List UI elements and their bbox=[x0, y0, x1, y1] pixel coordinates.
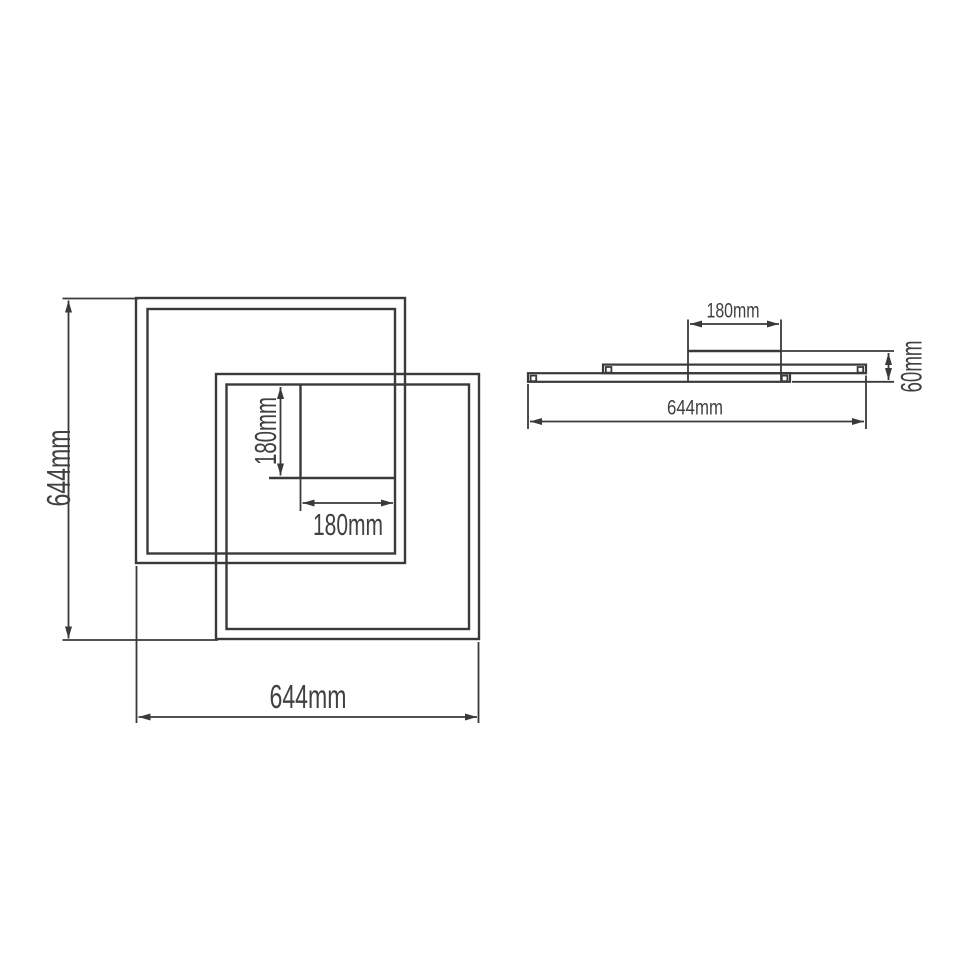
upper-bar-outline bbox=[603, 365, 866, 374]
upper-bar-left-endcap bbox=[606, 367, 612, 373]
lower-bar-outline bbox=[528, 373, 790, 382]
dim-front-canopy-width: 180mm bbox=[301, 479, 394, 542]
dimension-label-side-canopy-width: 180mm bbox=[707, 300, 760, 323]
lower-bar-right-endcap bbox=[782, 376, 788, 382]
side-view: 180mm 60mm 644mm bbox=[528, 300, 929, 430]
upper-frame-bar bbox=[603, 365, 866, 374]
dimension-label-overall-width: 644mm bbox=[270, 678, 347, 715]
dim-side-overall-width: 644mm bbox=[528, 376, 866, 430]
dim-front-canopy-height: 180mm bbox=[248, 387, 283, 476]
dim-front-overall-height: 644mm bbox=[40, 299, 218, 641]
dim-side-fixture-height: 60mm bbox=[781, 341, 929, 393]
dimension-label-fixture-height: 60mm bbox=[896, 341, 929, 393]
canopy-side-profile bbox=[688, 320, 781, 382]
dim-front-overall-width: 644mm bbox=[137, 566, 479, 723]
upper-bar-right-endcap bbox=[858, 367, 864, 373]
front-view: 644mm 644mm 180mm 180mm bbox=[40, 298, 479, 723]
dimension-label-overall-height: 644mm bbox=[40, 430, 77, 507]
lower-bar-left-endcap bbox=[531, 376, 537, 382]
dimension-drawing-page: 644mm 644mm 180mm 180mm bbox=[0, 0, 970, 971]
canopy-plate bbox=[269, 386, 395, 479]
dimension-label-side-overall-width: 644mm bbox=[667, 397, 723, 420]
lower-frame-bar bbox=[528, 373, 790, 382]
dimension-label-canopy-height: 180mm bbox=[248, 397, 283, 465]
dim-side-canopy-width: 180mm bbox=[690, 300, 779, 325]
dimension-label-canopy-width: 180mm bbox=[313, 507, 383, 542]
technical-drawing: 644mm 644mm 180mm 180mm bbox=[0, 0, 970, 971]
